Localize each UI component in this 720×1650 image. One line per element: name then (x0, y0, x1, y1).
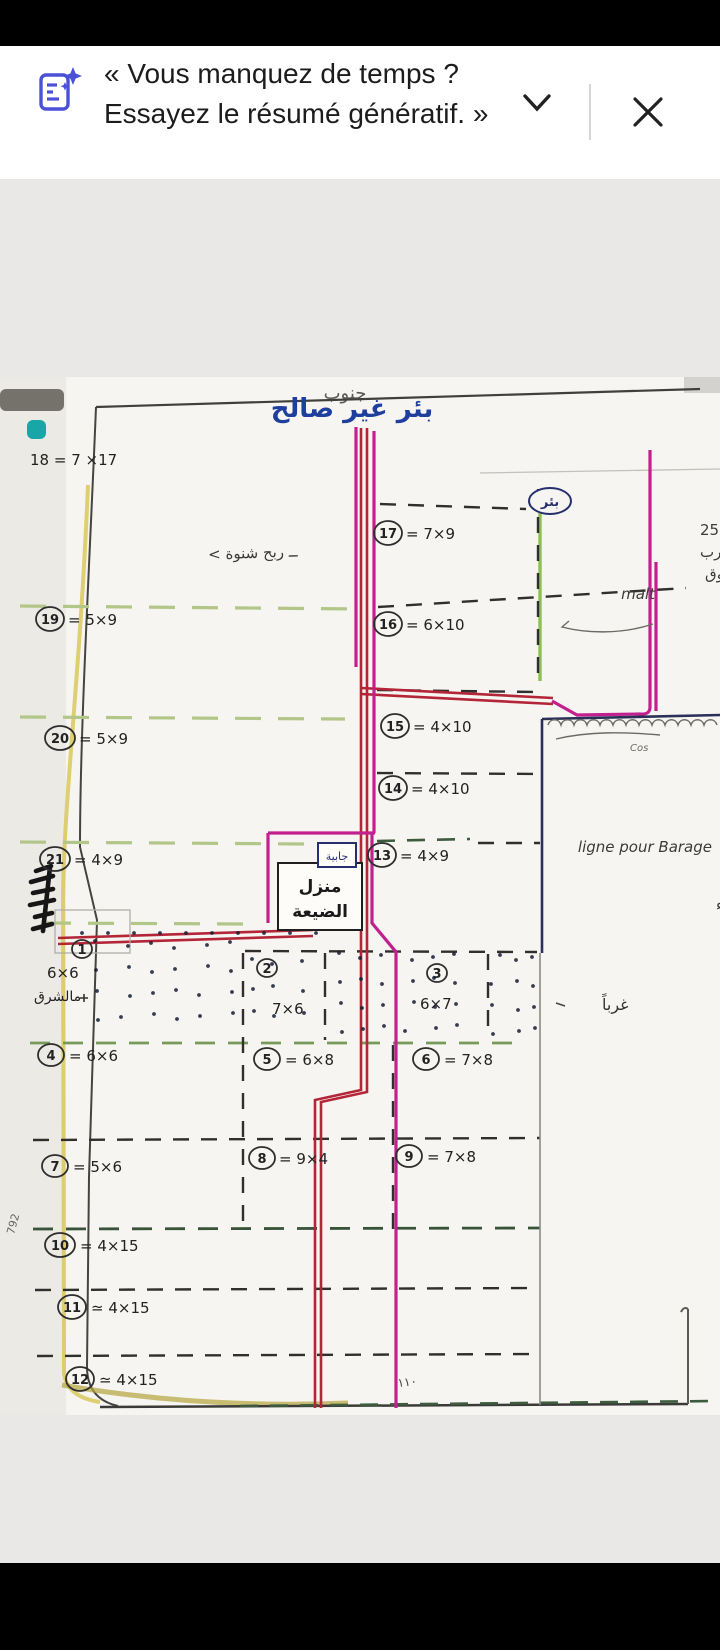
svg-text:= 4×15: = 4×15 (80, 1237, 139, 1255)
map-title: بئر غير صالح (271, 394, 434, 424)
svg-text:12: 12 (71, 1373, 89, 1388)
svg-text:الضيعة: الضيعة (292, 902, 348, 922)
svg-text:= 5×9: = 5×9 (79, 730, 128, 748)
svg-text:13: 13 (373, 849, 391, 864)
generative-summary-icon (38, 66, 84, 112)
svg-text:= 9×4: = 9×4 (279, 1150, 328, 1168)
svg-text:= 6×6: = 6×6 (69, 1047, 118, 1065)
svg-text:جابية: جابية (326, 850, 348, 863)
navigation-bar (0, 1563, 720, 1650)
map-drawing: جنوب بئر غير صالح (0, 377, 720, 1415)
scan-margin (0, 377, 66, 1415)
svg-text:ligne pour Barage: ligne pour Barage (578, 838, 712, 856)
bottom-note: ١١٠ (397, 1374, 418, 1390)
svg-text:7: 7 (50, 1160, 59, 1175)
cos-note: Cos (630, 743, 648, 754)
svg-text:11: 11 (63, 1301, 81, 1316)
svg-text:غرباً: غرباً (601, 992, 628, 1015)
svg-text:16: 16 (379, 618, 397, 633)
svg-text:يحتوي على ما يقارب: يحتوي على ما يقارب (700, 543, 720, 562)
svg-text:= 6×8: = 6×8 (285, 1051, 334, 1069)
svg-text:8: 8 (257, 1152, 266, 1167)
water-tank: جابية (318, 843, 356, 867)
banner-message-line1: « Vous manquez de temps ? (104, 54, 524, 94)
svg-text:10: 10 (51, 1239, 69, 1254)
svg-text:5: 5 (262, 1053, 271, 1068)
chevron-down-icon[interactable] (522, 91, 552, 115)
svg-text:7×6: 7×6 (272, 1000, 304, 1018)
svg-text:= 4×9: = 4×9 (400, 847, 449, 865)
svg-text:1: 1 (77, 943, 86, 958)
svg-text:= 4×10: = 4×10 (411, 780, 470, 798)
svg-text:21: 21 (46, 853, 64, 868)
svg-text:= 5×9: = 5×9 (68, 611, 117, 629)
teal-dot (27, 420, 46, 439)
svg-text:9: 9 (404, 1150, 413, 1165)
viewer-background-bottom (0, 1415, 720, 1563)
svg-text:ربح كبير = 12×25: ربح كبير = 12×25 (700, 521, 720, 539)
left-edge-note: مالشرق (34, 989, 81, 1005)
status-bar (0, 0, 720, 46)
svg-text:17: 17 (379, 527, 397, 542)
close-icon[interactable] (630, 94, 666, 130)
svg-text:= 6×10: = 6×10 (406, 616, 465, 634)
svg-text:منزل: منزل (299, 877, 342, 897)
svg-text:= 7×8: = 7×8 (444, 1051, 493, 1069)
svg-text:= 7×9: = 7×9 (406, 525, 455, 543)
svg-text:= 5×6: = 5×6 (73, 1158, 122, 1176)
plot-label-18: 18 = 7 ×17 (30, 451, 117, 469)
svg-text:= 7×8: = 7×8 (427, 1148, 476, 1166)
svg-text:≃ 4×15: ≃ 4×15 (99, 1371, 158, 1389)
banner-divider (589, 84, 591, 140)
svg-text:= 4×10: = 4×10 (413, 718, 472, 736)
svg-text:15: 15 (386, 720, 404, 735)
phone-screen: « Vous manquez de temps ? Essayez le rés… (0, 0, 720, 1650)
viewer-background-top (0, 179, 720, 377)
svg-text:= 4×9: = 4×9 (74, 851, 123, 869)
well-badge: بئر (529, 488, 571, 514)
scan-corner (684, 377, 720, 393)
svg-text:14: 14 (384, 782, 402, 797)
farm-house: منزل الضيعة (278, 863, 362, 930)
svg-text:6×7: 6×7 (420, 995, 452, 1013)
generative-summary-banner[interactable]: « Vous manquez de temps ? Essayez le rés… (0, 46, 720, 179)
document-viewer[interactable]: جنوب بئر غير صالح (0, 377, 720, 1415)
svg-text:عن 50 شجرة من يفوق: عن 50 شجرة من يفوق (705, 565, 720, 583)
banner-message: « Vous manquez de temps ? Essayez le rés… (104, 54, 524, 134)
banner-message-line2: Essayez le résumé génératif. » (104, 94, 524, 134)
svg-text:6: 6 (421, 1053, 430, 1068)
svg-text:20: 20 (51, 732, 69, 747)
area-note: ــ ربح شنوة > (208, 542, 299, 563)
svg-text:6×6: 6×6 (47, 964, 79, 982)
svg-text:≃ 4×15: ≃ 4×15 (91, 1299, 150, 1317)
scan-smudge (0, 389, 64, 411)
svg-text:malt: malt (621, 585, 656, 603)
svg-text:4: 4 (46, 1049, 55, 1064)
svg-text:19: 19 (41, 613, 59, 628)
svg-text:بئر: بئر (540, 495, 559, 510)
svg-text:توزيع الماء: توزيع الماء (716, 896, 720, 914)
